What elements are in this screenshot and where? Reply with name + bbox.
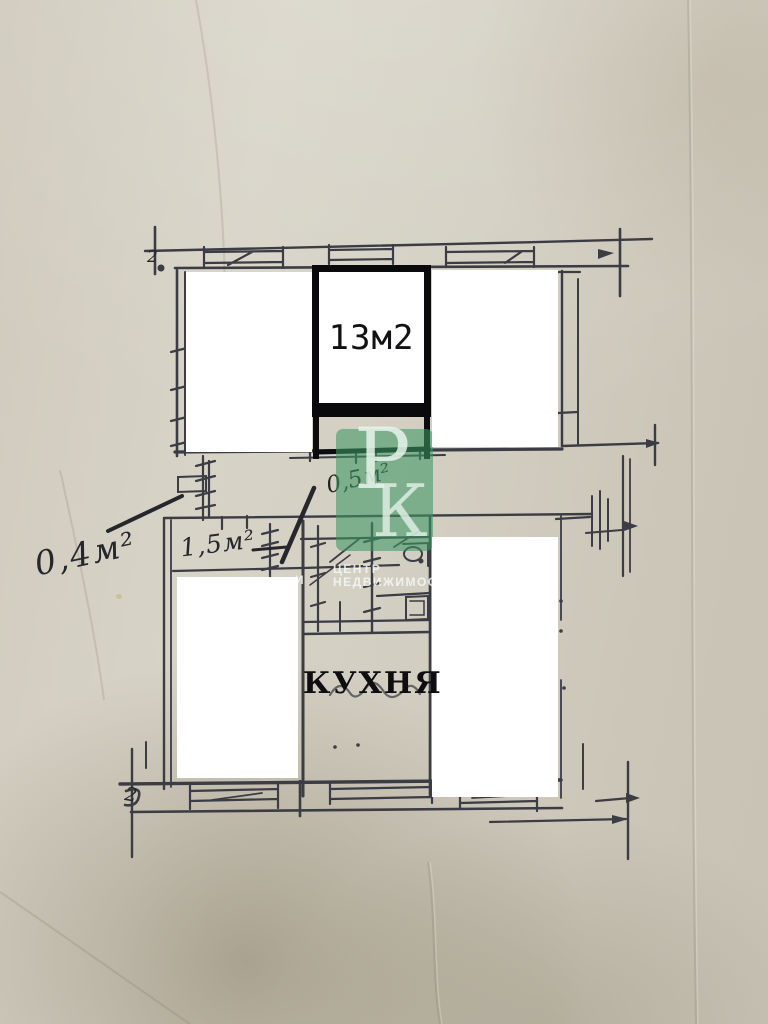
redaction-box-top-left [186,272,312,452]
floor-plan-photo: 0,4м² 1,5м² 0,5м² 2 2 Р К ЦЕНТР НЕДВИЖИМ… [0,0,768,1024]
redaction-box-bottom-left [177,577,298,778]
room-outline-13m2-bottom-bar [312,405,431,417]
watermark-caption-line1: ЦЕНТР [333,562,381,576]
redaction-box-bottom-right [432,537,558,797]
redaction-box-top-right [432,270,558,447]
watermark-letter-k: К [372,475,428,547]
watermark-logo: Р К [336,429,433,551]
kitchen-label: КУХНЯ [303,666,435,701]
handwritten-top-left-mark: 2 [147,247,158,267]
room-area-label: 13м2 [312,318,431,358]
paper-stain [116,594,122,599]
right-dimension-mid [556,425,658,576]
right-wall [558,271,580,446]
